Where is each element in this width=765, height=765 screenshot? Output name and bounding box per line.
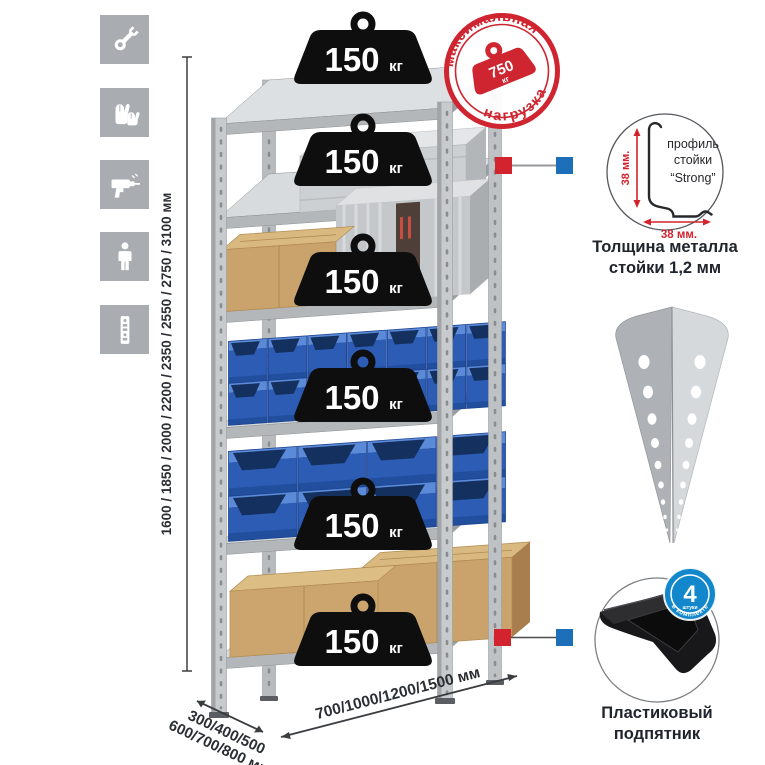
weight-value: 150 bbox=[324, 263, 379, 300]
shelf-weight-1: 150 кг bbox=[294, 15, 432, 84]
back-right-post bbox=[486, 60, 504, 685]
callout-foot bbox=[494, 629, 573, 646]
kit-count-small: штуки bbox=[682, 605, 697, 611]
profile-label-2: стойки bbox=[674, 153, 712, 167]
foot-caption: Пластиковый подпятник bbox=[562, 703, 752, 745]
weight-value: 150 bbox=[324, 623, 379, 660]
width-dimension: 700/1000/1200/1500 мм bbox=[281, 664, 517, 739]
weight-unit: кг bbox=[389, 280, 403, 297]
weight-unit: кг bbox=[389, 160, 403, 177]
red-marker bbox=[494, 629, 511, 646]
profile-detail-circle: 38 мм. 38 мм. профиль стойки “Strong” bbox=[607, 114, 723, 241]
kit-count-value: 4 bbox=[683, 581, 697, 608]
weight-value: 150 bbox=[324, 379, 379, 416]
red-marker bbox=[495, 157, 512, 174]
weight-unit: кг bbox=[389, 524, 403, 541]
height-dimension: 1600 / 1850 / 2000 / 2200 / 2350 / 2550 … bbox=[159, 57, 192, 671]
profile-label-1: профиль bbox=[667, 137, 719, 151]
product-infographic: 1600 / 1850 / 2000 / 2200 / 2350 / 2550 … bbox=[0, 0, 765, 765]
weight-value: 150 bbox=[324, 143, 379, 180]
weight-unit: кг bbox=[389, 396, 403, 413]
weight-unit: кг bbox=[389, 58, 403, 75]
profile-dim-vertical-label: 38 мм. bbox=[620, 151, 632, 186]
weight-unit: кг bbox=[389, 640, 403, 657]
foot-caption-line1: Пластиковый bbox=[562, 703, 752, 724]
width-dimension-label: 700/1000/1200/1500 мм bbox=[314, 664, 482, 723]
foot-caption-line2: подпятник bbox=[562, 724, 752, 745]
kit-count-badge: 4 штуки в комплекте bbox=[664, 568, 716, 620]
profile-caption: Толщина металла стойки 1,2 мм bbox=[570, 237, 760, 279]
callout-profile bbox=[495, 157, 573, 174]
blue-marker bbox=[556, 629, 573, 646]
angle-post-image bbox=[616, 307, 729, 543]
foot-detail-circle: 4 штуки в комплекте bbox=[595, 568, 719, 702]
profile-label-3: “Strong” bbox=[670, 171, 715, 185]
front-left-post bbox=[209, 118, 229, 718]
rack-illustration: 1600 / 1850 / 2000 / 2200 / 2350 / 2550 … bbox=[0, 0, 765, 765]
blue-marker bbox=[556, 157, 573, 174]
profile-caption-line1: Толщина металла bbox=[570, 237, 760, 258]
weight-value: 150 bbox=[324, 507, 379, 544]
front-right-post bbox=[435, 102, 455, 704]
height-dimension-label: 1600 / 1850 / 2000 / 2200 / 2350 / 2550 … bbox=[159, 193, 174, 536]
profile-caption-line2: стойки 1,2 мм bbox=[570, 258, 760, 279]
weight-value: 150 bbox=[324, 41, 379, 78]
